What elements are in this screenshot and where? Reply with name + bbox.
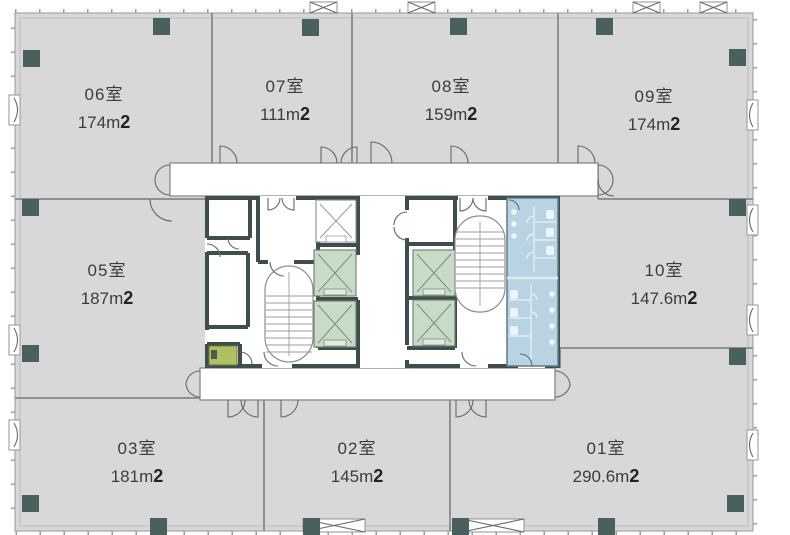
room-label-03: 03室 181m2	[111, 436, 164, 491]
room-area: 174m2	[628, 110, 681, 139]
room-label-06: 06室 174m2	[78, 82, 131, 137]
washroom-block	[507, 198, 558, 366]
room-area: 290.6m2	[573, 462, 640, 491]
room-label-02: 02室 145m2	[331, 436, 384, 491]
room-area: 174m2	[78, 108, 131, 137]
corridor-top	[170, 163, 598, 196]
room-number: 08室	[425, 74, 478, 100]
room-area: 187m2	[81, 284, 134, 313]
corridor-bottom	[200, 368, 555, 400]
room-area: 181m2	[111, 462, 164, 491]
room-number: 01室	[573, 436, 640, 462]
room-area: 159m2	[425, 100, 478, 129]
room-number: 06室	[78, 82, 131, 108]
room-area: 147.6m2	[631, 284, 698, 313]
room-area: 145m2	[331, 462, 384, 491]
room-label-01: 01室 290.6m2	[573, 436, 640, 491]
room-label-08: 08室 159m2	[425, 74, 478, 129]
utility-room	[209, 346, 237, 365]
core-passage	[358, 196, 407, 368]
room-number: 03室	[111, 436, 164, 462]
room-number: 10室	[631, 258, 698, 284]
room-number: 02室	[331, 436, 384, 462]
room-number: 09室	[628, 84, 681, 110]
room-number: 07室	[260, 74, 310, 100]
floor-plan: 06室 174m2 07室 111m2 08室 159m2 09室 174m2 …	[0, 0, 790, 535]
room-label-05: 05室 187m2	[81, 258, 134, 313]
room-label-07: 07室 111m2	[260, 74, 310, 129]
room-area: 111m2	[260, 100, 310, 129]
room-label-09: 09室 174m2	[628, 84, 681, 139]
room-label-10: 10室 147.6m2	[631, 258, 698, 313]
room-number: 05室	[81, 258, 134, 284]
